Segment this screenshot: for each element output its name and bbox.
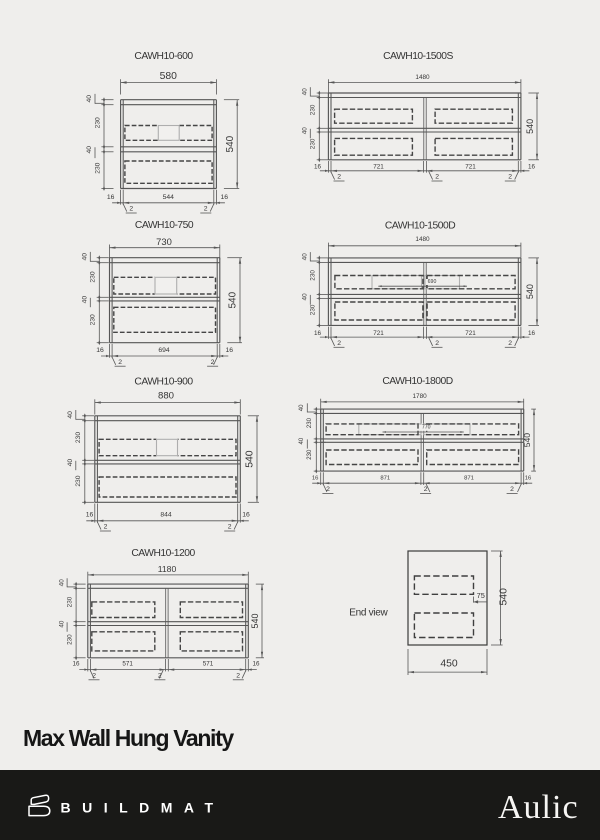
svg-text:2: 2 (236, 672, 240, 679)
svg-text:2: 2 (326, 486, 330, 493)
svg-text:230: 230 (66, 596, 73, 607)
svg-text:16: 16 (86, 512, 94, 519)
svg-text:871: 871 (380, 475, 390, 481)
svg-text:1780: 1780 (412, 393, 427, 400)
svg-text:40: 40 (58, 579, 65, 587)
svg-text:730: 730 (156, 236, 172, 247)
svg-text:230: 230 (75, 432, 82, 443)
svg-text:40: 40 (82, 253, 89, 261)
svg-text:CAWH10-1800D: CAWH10-1800D (382, 376, 452, 387)
svg-text:CAWH10-900: CAWH10-900 (134, 377, 193, 388)
svg-text:16: 16 (528, 330, 536, 337)
svg-text:40: 40 (302, 253, 309, 261)
svg-text:75: 75 (477, 591, 485, 600)
svg-text:BUILDMAT: BUILDMAT (61, 800, 225, 816)
svg-text:40: 40 (67, 411, 74, 419)
svg-text:230: 230 (90, 314, 97, 325)
svg-text:40: 40 (299, 437, 305, 444)
svg-text:CAWH10-600: CAWH10-600 (134, 51, 193, 62)
svg-text:16: 16 (72, 661, 80, 668)
svg-text:2: 2 (435, 340, 439, 347)
svg-text:571: 571 (203, 661, 214, 668)
svg-text:540: 540 (225, 135, 236, 152)
svg-text:2: 2 (508, 174, 512, 181)
svg-text:40: 40 (302, 293, 309, 301)
svg-text:540: 540 (250, 613, 260, 628)
svg-text:2: 2 (435, 174, 439, 181)
svg-text:230: 230 (94, 162, 101, 173)
svg-text:2: 2 (211, 359, 215, 366)
svg-text:CAWH10-750: CAWH10-750 (135, 220, 194, 231)
svg-text:230: 230 (310, 104, 317, 115)
svg-text:540: 540 (499, 588, 510, 606)
svg-text:2: 2 (118, 359, 122, 366)
svg-text:721: 721 (465, 163, 476, 170)
svg-text:230: 230 (307, 449, 313, 460)
svg-text:230: 230 (310, 304, 317, 315)
svg-text:2: 2 (129, 206, 133, 213)
svg-text:CAWH10-1500D: CAWH10-1500D (385, 221, 455, 232)
svg-text:540: 540 (245, 450, 256, 468)
svg-text:40: 40 (58, 620, 65, 628)
svg-text:721: 721 (373, 163, 384, 170)
svg-text:540: 540 (228, 291, 239, 308)
svg-text:544: 544 (163, 194, 175, 201)
svg-text:770: 770 (422, 425, 431, 431)
svg-text:1480: 1480 (415, 236, 430, 243)
svg-text:2: 2 (228, 524, 232, 531)
svg-text:580: 580 (160, 71, 178, 82)
svg-text:571: 571 (122, 661, 133, 668)
svg-text:230: 230 (310, 138, 317, 149)
svg-text:230: 230 (90, 271, 97, 282)
svg-text:16: 16 (242, 512, 250, 519)
svg-text:2: 2 (92, 672, 96, 679)
svg-text:230: 230 (310, 270, 317, 281)
svg-text:721: 721 (465, 330, 476, 337)
svg-text:230: 230 (66, 634, 73, 645)
svg-text:End view: End view (349, 607, 388, 618)
svg-text:230: 230 (94, 117, 101, 128)
svg-text:16: 16 (226, 347, 234, 354)
svg-text:40: 40 (302, 127, 309, 135)
svg-text:40: 40 (86, 95, 93, 103)
svg-text:540: 540 (522, 433, 532, 448)
svg-text:2: 2 (104, 524, 108, 531)
svg-text:1180: 1180 (158, 564, 177, 574)
svg-text:16: 16 (314, 163, 322, 170)
svg-text:2: 2 (158, 672, 162, 679)
svg-text:540: 540 (525, 119, 535, 134)
svg-text:40: 40 (67, 459, 74, 467)
svg-text:2: 2 (510, 486, 514, 493)
svg-text:CAWH10-1200: CAWH10-1200 (131, 548, 195, 559)
svg-text:2: 2 (337, 340, 341, 347)
svg-text:16: 16 (528, 163, 536, 170)
svg-text:16: 16 (252, 661, 260, 668)
svg-text:230: 230 (307, 417, 313, 428)
svg-text:CAWH10-1500S: CAWH10-1500S (383, 51, 453, 62)
svg-text:1480: 1480 (415, 74, 430, 81)
svg-text:2: 2 (424, 486, 428, 493)
svg-text:2: 2 (337, 174, 341, 181)
svg-text:40: 40 (299, 404, 305, 411)
svg-text:230: 230 (75, 475, 82, 486)
svg-text:2: 2 (508, 340, 512, 347)
svg-text:2: 2 (204, 206, 208, 213)
svg-text:16: 16 (221, 194, 229, 201)
svg-text:16: 16 (312, 475, 319, 481)
svg-text:16: 16 (314, 330, 322, 337)
svg-text:871: 871 (464, 475, 474, 481)
svg-text:16: 16 (96, 347, 104, 354)
svg-text:690: 690 (428, 279, 437, 285)
svg-text:721: 721 (373, 330, 384, 337)
svg-text:694: 694 (158, 347, 170, 354)
svg-text:540: 540 (525, 284, 535, 299)
svg-text:450: 450 (440, 658, 458, 669)
svg-text:40: 40 (86, 146, 93, 154)
svg-text:40: 40 (82, 296, 89, 304)
svg-text:880: 880 (158, 391, 174, 402)
svg-text:Aulic: Aulic (498, 789, 579, 826)
svg-text:844: 844 (160, 512, 172, 519)
svg-text:Max Wall Hung Vanity: Max Wall Hung Vanity (23, 725, 234, 751)
svg-text:40: 40 (302, 88, 309, 96)
svg-text:16: 16 (107, 194, 115, 201)
svg-text:16: 16 (525, 475, 532, 481)
